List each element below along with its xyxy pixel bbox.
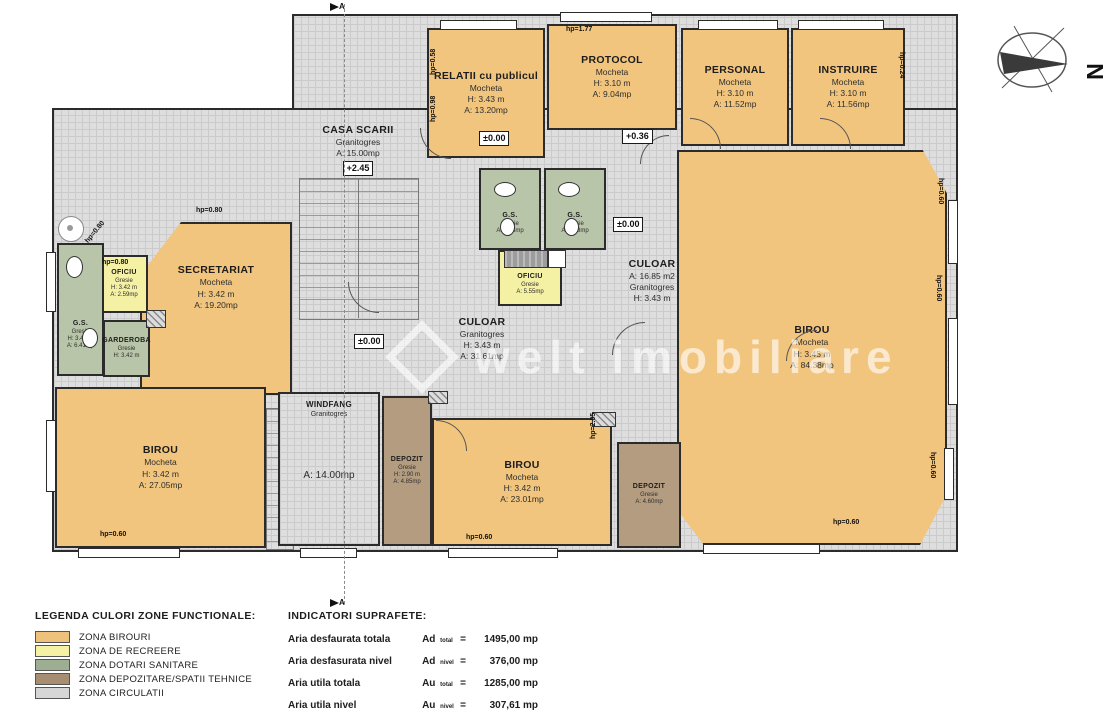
room-gs-centru-2: G.S. Gresie A: 3.58mp bbox=[544, 168, 606, 250]
indicator-equals: = bbox=[460, 700, 473, 711]
compass-icon bbox=[992, 18, 1076, 102]
indicator-value: 307,61 mp bbox=[473, 700, 538, 711]
window bbox=[698, 20, 778, 30]
indicator-value: 1285,00 mp bbox=[473, 678, 538, 689]
room-secretariat: SECRETARIAT Mocheta H: 3.42 m A: 19.20mp bbox=[140, 222, 292, 395]
room-name: OFICIU bbox=[517, 273, 543, 282]
hp-label: hp=0.60 bbox=[937, 178, 944, 204]
shaft-hatch bbox=[146, 310, 166, 328]
level-marker: +2.45 bbox=[343, 161, 374, 176]
room-name: SECRETARIAT bbox=[178, 264, 254, 277]
legend-item-birouri: ZONA BIROURI bbox=[35, 631, 256, 643]
room-depozit-dreapta: DEPOZIT Gresie A: 4.60mp bbox=[617, 442, 681, 548]
window bbox=[798, 20, 884, 30]
room-name: GARDEROBA bbox=[102, 337, 151, 346]
window bbox=[560, 12, 652, 22]
kitchen-sink bbox=[548, 250, 566, 268]
indicator-equals: = bbox=[460, 656, 473, 667]
shaft-hatch bbox=[428, 391, 448, 404]
hp-label: hp=1.77 bbox=[566, 26, 592, 33]
room-area: A: 5.55mp bbox=[516, 289, 543, 296]
legend-swatch-storage bbox=[35, 673, 70, 685]
indicator-value: 1495,00 mp bbox=[473, 634, 538, 645]
label-culoar-centru: CULOAR Granitogres H: 3.43 m A: 31.61mp bbox=[430, 316, 534, 362]
legend-item-recreere: ZONA DE RECREERE bbox=[35, 645, 256, 657]
room-finish: Gresie bbox=[115, 278, 133, 285]
room-height: H: 3.42 m bbox=[113, 353, 139, 360]
room-height: H: 3.43 m bbox=[468, 94, 505, 105]
sink-icon bbox=[82, 328, 98, 348]
indicator-symbol: Ad bbox=[422, 656, 440, 667]
section-marker-top: A bbox=[330, 2, 345, 11]
legend-item-sanitare: ZONA DOTARI SANITARE bbox=[35, 659, 256, 671]
room-finish: Granitogres bbox=[460, 329, 504, 340]
room-area: A: 11.56mp bbox=[827, 99, 870, 110]
indicator-symbol: Au bbox=[422, 700, 440, 711]
toilet-icon bbox=[494, 182, 516, 197]
window bbox=[46, 420, 56, 492]
indicator-row: Aria utila nivel Au nivel = 307,61 mp bbox=[288, 700, 538, 711]
room-name: CULOAR bbox=[629, 258, 676, 271]
window bbox=[46, 252, 56, 312]
hp-label: hp=0.80 bbox=[102, 259, 128, 266]
window bbox=[448, 548, 558, 558]
room-protocol: PROTOCOL Mocheta H: 3.10 m A: 9.04mp bbox=[547, 24, 677, 130]
room-name: DEPOZIT bbox=[633, 483, 665, 492]
room-finish: Granitogres bbox=[336, 137, 380, 148]
room-finish: Gresie bbox=[521, 282, 539, 289]
indicators-title: INDICATORI SUPRAFETE: bbox=[288, 610, 538, 622]
room-name: BIROU bbox=[143, 444, 178, 457]
room-finish: Mocheta bbox=[719, 77, 752, 88]
legend-label: ZONA DEPOZITARE/SPATII TEHNICE bbox=[79, 674, 252, 685]
section-triangle-icon bbox=[330, 3, 339, 11]
room-name: PROTOCOL bbox=[581, 54, 643, 67]
room-name: BIROU bbox=[504, 459, 539, 472]
window bbox=[440, 20, 517, 30]
room-finish: Gresie bbox=[118, 346, 136, 353]
room-height: H: 3.10 m bbox=[594, 78, 631, 89]
hp-label: hp=0.58 bbox=[430, 49, 437, 75]
room-height: H: 2.90 m bbox=[394, 472, 420, 479]
room-height: H: 3.42 m bbox=[142, 469, 179, 480]
room-area: A: 27.05mp bbox=[139, 480, 182, 491]
label-culoar-dreapta: CULOAR A: 16.85 m2 Granitogres H: 3.43 m bbox=[608, 258, 696, 304]
indicator-row: Aria desfasurata nivel Ad nivel = 376,00… bbox=[288, 656, 538, 667]
room-area: A: 11.52mp bbox=[714, 99, 757, 110]
hp-label: hp=0.60 bbox=[100, 531, 126, 538]
section-letter: A bbox=[339, 598, 345, 607]
window bbox=[948, 318, 958, 405]
room-gs-centru-1: G.S. Gresie A: 3.58mp bbox=[479, 168, 541, 250]
room-height: H: 3.10 m bbox=[717, 88, 754, 99]
floor-plan-page: RELATII cu publicul Mocheta H: 3.43 m A:… bbox=[0, 0, 1119, 720]
indicator-label: Aria desfaurata totala bbox=[288, 634, 422, 645]
room-finish: Granitogres bbox=[311, 410, 348, 419]
surface-indicators: INDICATORI SUPRAFETE: Aria desfaurata to… bbox=[288, 610, 538, 720]
room-finish: Gresie bbox=[398, 465, 416, 472]
room-area: A: 2.59mp bbox=[110, 292, 137, 299]
room-area: A: 4.60mp bbox=[635, 499, 662, 506]
level-marker: ±0.00 bbox=[354, 334, 384, 349]
window bbox=[948, 200, 958, 264]
window bbox=[944, 448, 954, 500]
hp-label: hp=0.60 bbox=[929, 452, 936, 478]
window bbox=[78, 548, 180, 558]
room-windfang: WINDFANG Granitogres A: 14.00mp bbox=[278, 392, 380, 546]
section-marker-bottom: A bbox=[330, 598, 345, 607]
legend-title: LEGENDA CULORI ZONE FUNCTIONALE: bbox=[35, 610, 256, 622]
room-finish: Mocheta bbox=[144, 457, 177, 468]
legend-item-circulatii: ZONA CIRCULATII bbox=[35, 687, 256, 699]
room-garderoba: GARDEROBA Gresie H: 3.42 m bbox=[103, 320, 150, 377]
room-finish: Mocheta bbox=[506, 472, 539, 483]
sink-icon bbox=[564, 218, 579, 236]
room-height: H: 3.42 m bbox=[111, 285, 137, 292]
room-name: INSTRUIRE bbox=[818, 64, 877, 77]
room-name: PERSONAL bbox=[705, 64, 766, 77]
hp-label: hp=0.24 bbox=[898, 52, 905, 78]
toilet-icon bbox=[558, 182, 580, 197]
room-finish: Mocheta bbox=[200, 277, 233, 288]
room-area: A: 4.85mp bbox=[393, 479, 420, 486]
room-name: CASA SCARII bbox=[322, 124, 393, 137]
room-birou-stanga: BIROU Mocheta H: 3.42 m A: 27.05mp bbox=[55, 387, 266, 548]
room-area: A: 15.00mp bbox=[336, 148, 379, 159]
legend-swatch-office bbox=[35, 631, 70, 643]
window bbox=[703, 544, 820, 554]
room-area: A: 23.01mp bbox=[500, 494, 543, 505]
room-area: A: 19.20mp bbox=[194, 300, 237, 311]
room-finish: Mocheta bbox=[596, 67, 629, 78]
legend: LEGENDA CULORI ZONE FUNCTIONALE: ZONA BI… bbox=[35, 610, 256, 701]
indicator-label: Aria utila nivel bbox=[288, 700, 422, 711]
legend-label: ZONA CIRCULATII bbox=[79, 688, 164, 699]
room-height: H: 3.10 m bbox=[830, 88, 867, 99]
section-letter: A bbox=[339, 2, 345, 11]
room-name: RELATII cu publicul bbox=[434, 70, 538, 83]
hp-label: hp=2.05 bbox=[590, 413, 597, 439]
indicator-value: 376,00 mp bbox=[473, 656, 538, 667]
sink-icon bbox=[500, 218, 515, 236]
legend-label: ZONA DOTARI SANITARE bbox=[79, 660, 198, 671]
column-dot bbox=[67, 225, 73, 231]
indicator-label: Aria utila totala bbox=[288, 678, 422, 689]
section-line bbox=[344, 4, 345, 604]
room-name: DEPOZIT bbox=[391, 456, 423, 465]
section-triangle-icon bbox=[330, 599, 339, 607]
room-finish: Granitogres bbox=[630, 282, 674, 293]
room-height: H: 3.42 m bbox=[504, 483, 541, 494]
room-finish: Mocheta bbox=[832, 77, 865, 88]
legend-label: ZONA DE RECREERE bbox=[79, 646, 181, 657]
indicator-subscript: total bbox=[440, 682, 460, 688]
legend-swatch-recreation bbox=[35, 645, 70, 657]
room-instruire: INSTRUIRE Mocheta H: 3.10 m A: 11.56mp bbox=[791, 28, 905, 146]
kitchen-counter bbox=[504, 250, 548, 268]
room-area: A: 16.85 m2 bbox=[629, 271, 675, 282]
label-casa-scarii: CASA SCARII Granitogres A: 15.00mp +2.45 bbox=[298, 124, 418, 176]
indicator-subscript: nivel bbox=[440, 704, 460, 710]
indicator-symbol: Ad bbox=[422, 634, 440, 645]
room-area: A: 9.04mp bbox=[593, 89, 632, 100]
indicator-row: Aria utila totala Au total = 1285,00 mp bbox=[288, 678, 538, 689]
room-height: H: 3.43 m bbox=[464, 340, 501, 351]
legend-swatch-circulation bbox=[35, 687, 70, 699]
indicator-subscript: nivel bbox=[440, 660, 460, 666]
toilet-icon bbox=[66, 256, 83, 278]
room-height: H: 3.43 m bbox=[634, 293, 671, 304]
hp-label: hp=0.98 bbox=[430, 96, 437, 122]
indicator-symbol: Au bbox=[422, 678, 440, 689]
room-height: H: 3.42 m bbox=[198, 289, 235, 300]
room-area: A: 13.20mp bbox=[464, 105, 507, 116]
room-finish: Mocheta bbox=[470, 83, 503, 94]
indicator-equals: = bbox=[460, 678, 473, 689]
level-marker: +0.36 bbox=[622, 129, 653, 144]
level-marker: ±0.00 bbox=[479, 131, 509, 146]
room-name: WINDFANG bbox=[306, 400, 352, 410]
indicator-row: Aria desfaurata totala Ad total = 1495,0… bbox=[288, 634, 538, 645]
legend-label: ZONA BIROURI bbox=[79, 632, 151, 643]
room-finish: Gresie bbox=[640, 492, 658, 499]
room-name: CULOAR bbox=[459, 316, 506, 329]
indicator-subscript: total bbox=[440, 638, 460, 644]
room-name: G.S. bbox=[73, 320, 88, 329]
hp-label: hp=0.80 bbox=[196, 207, 222, 214]
hp-label: hp=0.60 bbox=[935, 275, 942, 301]
room-depozit-stanga: DEPOZIT Gresie H: 2.90 m A: 4.85mp bbox=[382, 396, 432, 546]
room-area: A: 14.00mp bbox=[303, 469, 354, 482]
room-area: A: 31.61mp bbox=[460, 351, 503, 362]
level-marker: ±0.00 bbox=[613, 217, 643, 232]
hp-label: hp=0.60 bbox=[833, 519, 859, 526]
legend-item-depozitare: ZONA DEPOZITARE/SPATII TEHNICE bbox=[35, 673, 256, 685]
indicator-label: Aria desfasurata nivel bbox=[288, 656, 422, 667]
hp-label: hp=0.60 bbox=[466, 534, 492, 541]
north-label: N bbox=[1081, 63, 1108, 80]
window bbox=[300, 548, 357, 558]
room-name: OFICIU bbox=[111, 269, 137, 278]
indicator-equals: = bbox=[460, 634, 473, 645]
room-area: A: 84.38mp bbox=[790, 360, 833, 371]
legend-swatch-sanitary bbox=[35, 659, 70, 671]
